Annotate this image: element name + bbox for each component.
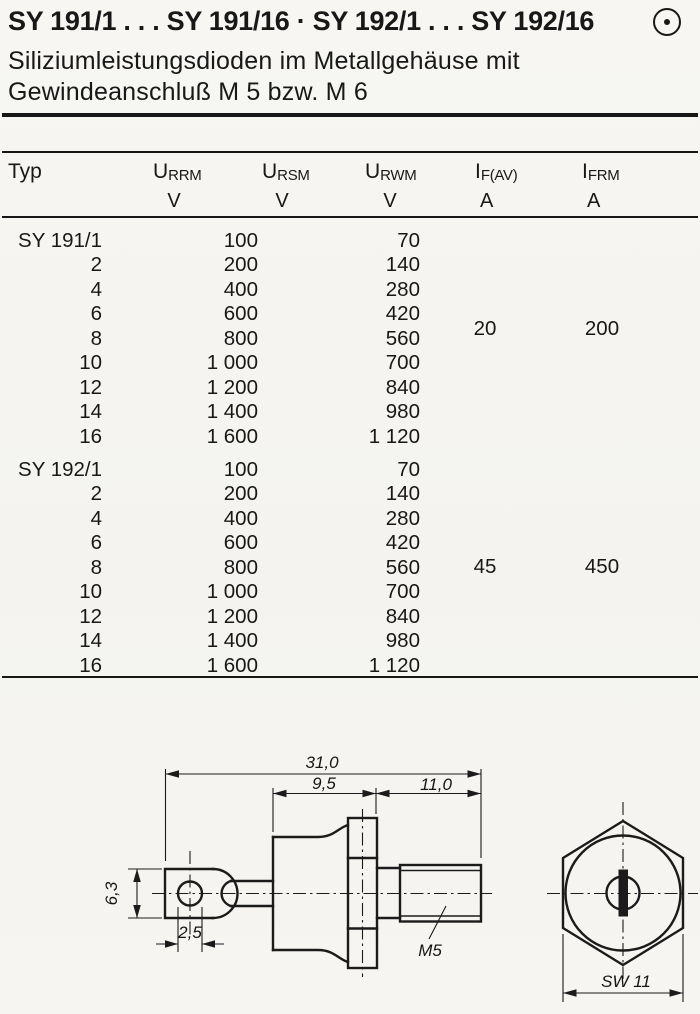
cell-urwm: 980 bbox=[310, 400, 420, 425]
datasheet-page: SY 191/1 . . . SY 191/16 · SY 192/1 . . … bbox=[0, 0, 700, 1014]
cell-urwm: 1 120 bbox=[310, 654, 420, 679]
page-title: SY 191/1 . . . SY 191/16 · SY 192/1 . . … bbox=[8, 6, 638, 36]
table-row: 141 400980 bbox=[0, 629, 700, 654]
cell-urwm: 700 bbox=[310, 580, 420, 605]
dim-total-length-text: 31,0 bbox=[305, 753, 339, 772]
cell-urwm: 1 120 bbox=[310, 425, 420, 450]
cell-urrm: 1 200 bbox=[150, 605, 258, 630]
cell-typ: 16 bbox=[4, 654, 102, 679]
cell-typ: 2 bbox=[4, 253, 102, 278]
cell-typ: 6 bbox=[4, 302, 102, 327]
cell-urwm: 840 bbox=[310, 376, 420, 401]
cell-urwm: 560 bbox=[310, 556, 420, 581]
table-row: 101 000700 bbox=[0, 580, 700, 605]
dim-body-length-text: 9,5 bbox=[312, 774, 336, 793]
cell-urrm: 200 bbox=[150, 482, 258, 507]
column-header-ifav: IF(AV) A bbox=[475, 159, 521, 214]
cell-urrm: 1 200 bbox=[150, 376, 258, 401]
cell-urwm: 280 bbox=[310, 278, 420, 303]
table-row: SY 192/110070 bbox=[0, 458, 700, 483]
table-row: 141 400980 bbox=[0, 400, 700, 425]
table-row: 4400280 bbox=[0, 278, 700, 303]
column-label: IFRM bbox=[582, 159, 624, 188]
table-row: 2200140 bbox=[0, 253, 700, 278]
thread-label: M5 bbox=[418, 906, 446, 960]
cell-urwm: 140 bbox=[310, 482, 420, 507]
front-view-drawing: SW 11 bbox=[547, 802, 698, 1002]
dim-lug-height-text: 6,3 bbox=[102, 881, 121, 905]
page-subtitle: Siliziumleistungsdioden im Metallgehäuse… bbox=[8, 46, 520, 108]
dim-stud-length-text: 11,0 bbox=[420, 775, 452, 794]
table-row: SY 191/110070 bbox=[0, 229, 700, 254]
cell-typ: 4 bbox=[4, 507, 102, 532]
table-row: 161 6001 120 bbox=[0, 654, 700, 679]
cell-urrm: 400 bbox=[150, 507, 258, 532]
circled-dot-center bbox=[664, 19, 670, 25]
subtitle-line-2: Gewindeanschluß M 5 bzw. M 6 bbox=[8, 77, 520, 108]
cell-urrm: 1 400 bbox=[150, 400, 258, 425]
table-row: 121 200840 bbox=[0, 376, 700, 401]
cell-typ: SY 192/1 bbox=[4, 458, 102, 483]
cell-typ: 14 bbox=[4, 629, 102, 654]
cell-urrm: 1 000 bbox=[150, 351, 258, 376]
cell-typ: 6 bbox=[4, 531, 102, 556]
cell-urrm: 200 bbox=[150, 253, 258, 278]
column-label: URRM bbox=[153, 159, 203, 188]
cell-urrm: 1 600 bbox=[150, 425, 258, 450]
column-unit: V bbox=[153, 189, 203, 214]
table-row: 6600420 bbox=[0, 531, 700, 556]
cell-typ: 14 bbox=[4, 400, 102, 425]
column-header-urrm: URRM V bbox=[153, 159, 203, 214]
cell-urwm: 420 bbox=[310, 302, 420, 327]
column-header-ifrm: IFRM A bbox=[582, 159, 624, 214]
cell-typ: 12 bbox=[4, 376, 102, 401]
table-row: 101 000700 bbox=[0, 351, 700, 376]
column-header-urwm: URWM V bbox=[365, 159, 423, 214]
divider-thick bbox=[2, 113, 698, 117]
column-label: URSM bbox=[262, 159, 310, 188]
cell-urwm: 70 bbox=[310, 458, 420, 483]
cell-urrm: 100 bbox=[150, 229, 258, 254]
cell-urwm: 280 bbox=[310, 507, 420, 532]
cell-typ: 4 bbox=[4, 278, 102, 303]
subtitle-line-1: Siliziumleistungsdioden im Metallgehäuse… bbox=[8, 46, 520, 77]
cell-typ: 2 bbox=[4, 482, 102, 507]
case-top-edge bbox=[273, 825, 348, 837]
cell-urwm: 140 bbox=[310, 253, 420, 278]
cell-ifrm-sy191: 200 bbox=[576, 317, 628, 341]
cell-urrm: 100 bbox=[150, 458, 258, 483]
column-label: URWM bbox=[365, 159, 423, 188]
dim-hole-diameter-text: 2,5 bbox=[177, 923, 202, 942]
table-row: 4400280 bbox=[0, 507, 700, 532]
cell-typ: 12 bbox=[4, 605, 102, 630]
cell-typ: 10 bbox=[4, 580, 102, 605]
column-unit: V bbox=[262, 189, 310, 214]
cell-urrm: 1 600 bbox=[150, 654, 258, 679]
cell-typ: 16 bbox=[4, 425, 102, 450]
divider-table-top bbox=[2, 151, 698, 153]
solder-tab-slot bbox=[619, 870, 629, 917]
cell-urrm: 1 400 bbox=[150, 629, 258, 654]
dim-total-length: 31,0 bbox=[166, 753, 482, 861]
cell-urwm: 840 bbox=[310, 605, 420, 630]
side-view-drawing: 31,0 9,5 11,0 6,3 bbox=[102, 753, 492, 977]
cell-urwm: 980 bbox=[310, 629, 420, 654]
cell-typ: 10 bbox=[4, 351, 102, 376]
column-header-ursm: URSM V bbox=[262, 159, 310, 214]
cell-typ: 8 bbox=[4, 556, 102, 581]
divider-header-bottom bbox=[2, 216, 698, 218]
cell-urrm: 600 bbox=[150, 302, 258, 327]
column-unit: A bbox=[475, 189, 521, 214]
cell-urwm: 70 bbox=[310, 229, 420, 254]
cell-ifav-sy192: 45 bbox=[462, 555, 508, 579]
column-header-typ: Typ bbox=[8, 159, 42, 184]
table-row: 2200140 bbox=[0, 482, 700, 507]
column-unit: A bbox=[582, 189, 624, 214]
cell-typ: SY 191/1 bbox=[4, 229, 102, 254]
cell-ifav-sy191: 20 bbox=[462, 317, 508, 341]
case-bottom-edge bbox=[273, 950, 348, 962]
cell-urrm: 800 bbox=[150, 327, 258, 352]
table-row: 161 6001 120 bbox=[0, 425, 700, 450]
cell-urrm: 600 bbox=[150, 531, 258, 556]
cell-urwm: 560 bbox=[310, 327, 420, 352]
dim-wrench-size-text: SW 11 bbox=[601, 972, 651, 991]
cell-typ: 8 bbox=[4, 327, 102, 352]
cell-urrm: 400 bbox=[150, 278, 258, 303]
cell-urwm: 700 bbox=[310, 351, 420, 376]
column-unit: V bbox=[365, 189, 423, 214]
cell-ifrm-sy192: 450 bbox=[576, 555, 628, 579]
cell-urwm: 420 bbox=[310, 531, 420, 556]
thread-label-text: M5 bbox=[418, 941, 442, 960]
table-row: 121 200840 bbox=[0, 605, 700, 630]
package-drawing: 31,0 9,5 11,0 6,3 bbox=[0, 690, 700, 1014]
cell-urrm: 1 000 bbox=[150, 580, 258, 605]
column-label: IF(AV) bbox=[475, 159, 521, 188]
cell-urrm: 800 bbox=[150, 556, 258, 581]
circled-dot-icon bbox=[653, 8, 681, 36]
